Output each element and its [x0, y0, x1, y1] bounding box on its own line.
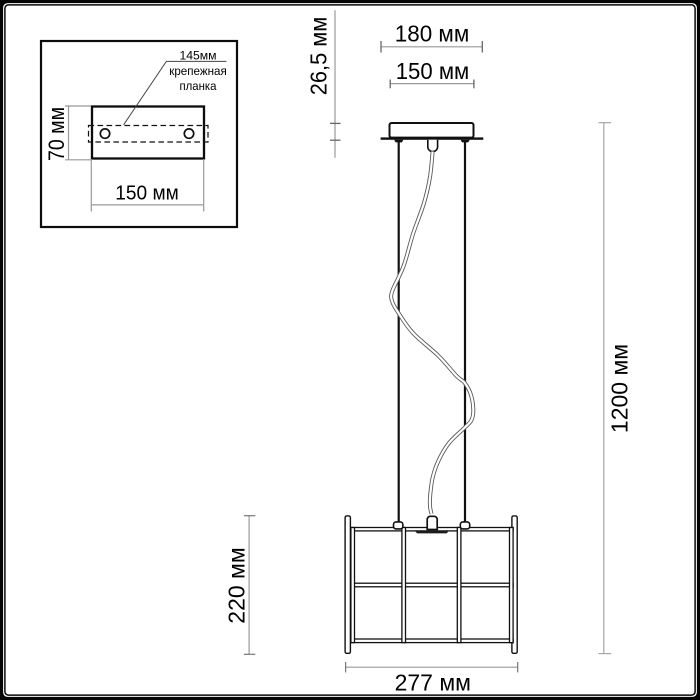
svg-text:180 мм: 180 мм: [395, 21, 470, 47]
svg-text:277 мм: 277 мм: [395, 670, 471, 696]
svg-text:220 мм: 220 мм: [224, 547, 250, 623]
svg-text:150 мм: 150 мм: [115, 183, 179, 205]
svg-text:26,5 мм: 26,5 мм: [306, 17, 332, 96]
svg-text:145мм: 145мм: [179, 49, 216, 63]
svg-text:крепежная: крепежная: [169, 64, 227, 78]
svg-text:планка: планка: [180, 79, 217, 93]
svg-text:1200 мм: 1200 мм: [607, 344, 633, 433]
svg-text:70 мм: 70 мм: [44, 107, 69, 161]
svg-text:150 мм: 150 мм: [396, 58, 470, 84]
